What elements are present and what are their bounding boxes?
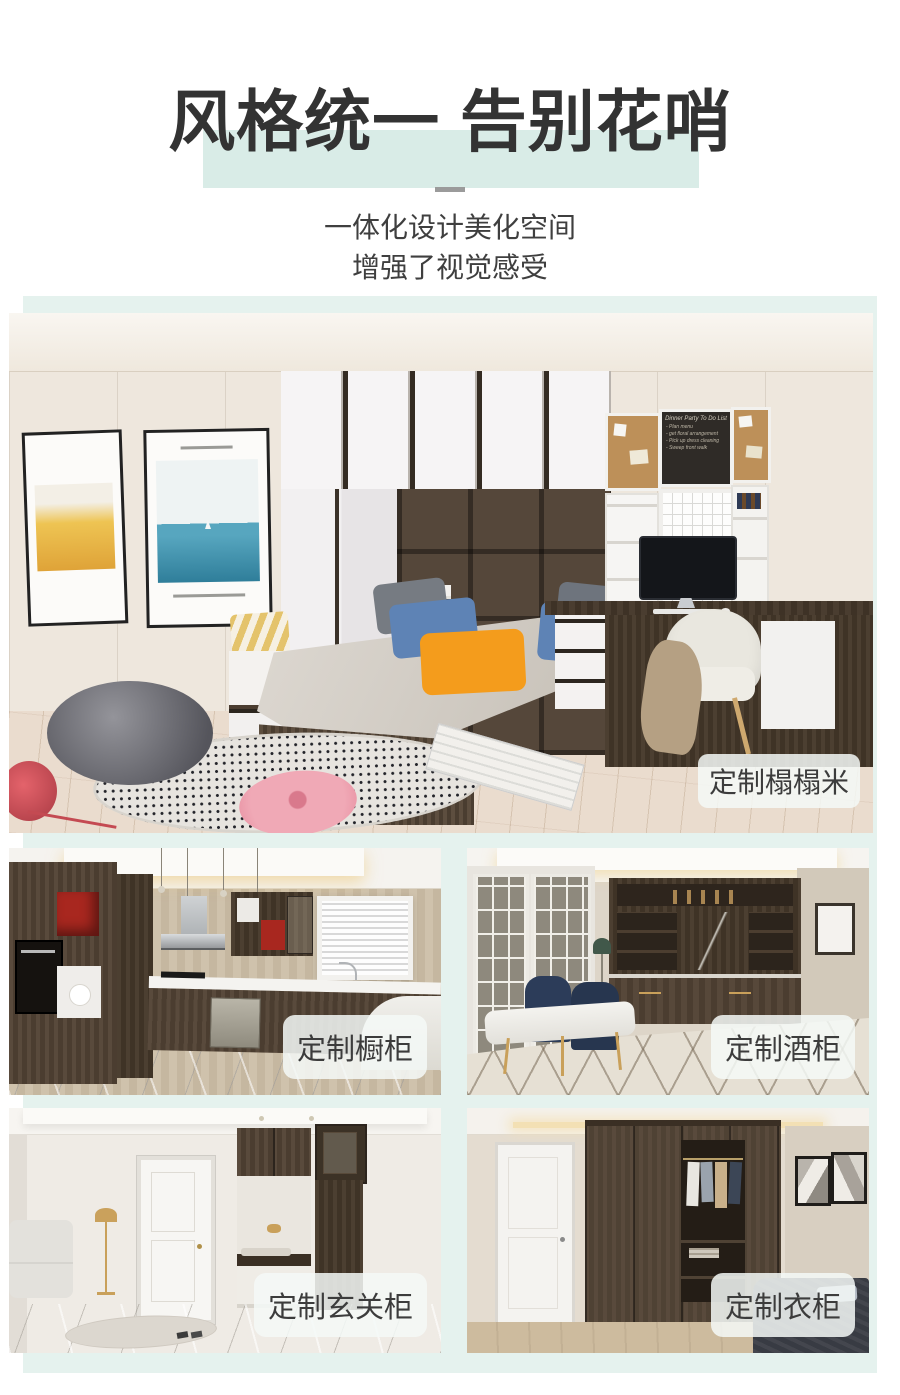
- display-plate: [69, 984, 91, 1006]
- cabinet-gap: [273, 1128, 275, 1176]
- built-in-oven: [15, 940, 63, 1014]
- dishwasher: [210, 997, 261, 1048]
- upper-cabinets: [231, 892, 313, 956]
- range-hood: [161, 934, 225, 950]
- pillow-orange: [419, 628, 526, 695]
- upper-red-niche: [261, 920, 285, 950]
- tall-cabinet-left: [9, 862, 117, 1084]
- pinned-note: [746, 445, 763, 458]
- wine-shelves-left: [617, 912, 677, 970]
- memo-corkboard-left: [605, 413, 661, 491]
- door-knob: [560, 1237, 565, 1242]
- subtitle-line-2: 增强了视觉感受: [0, 250, 900, 286]
- chalkboard-item: - Plan menu: [666, 424, 730, 430]
- door-panel: [508, 1237, 558, 1309]
- cabinet-handle: [639, 992, 661, 994]
- photo-entryway: 定制玄关柜: [9, 1108, 441, 1353]
- glass-cabinet-doors: [287, 896, 313, 954]
- chalkboard-item: - get floral arrangement: [666, 431, 730, 437]
- knit-pouf: [47, 681, 213, 785]
- desk-cabinet-white-door: [761, 621, 835, 729]
- photo-label-wardrobe: 定制衣柜: [711, 1273, 855, 1337]
- spotlight: [259, 1116, 264, 1121]
- hanging-clothes: [686, 1162, 700, 1206]
- entry-open-niche: [237, 1176, 311, 1254]
- photo-kitchen: 定制橱柜: [9, 848, 441, 1095]
- ocean-caption-bottom: [173, 593, 245, 597]
- closet-shelf: [681, 1240, 745, 1243]
- closet-rod: [683, 1158, 743, 1160]
- hanging-clothes: [700, 1162, 713, 1202]
- shelf-divider: [733, 517, 767, 520]
- door-panel: [508, 1157, 558, 1229]
- bench-cushion: [241, 1248, 291, 1256]
- shelf-divider: [733, 557, 767, 560]
- ceiling-cove: [23, 1108, 427, 1124]
- wall-frame: [815, 903, 855, 955]
- subtitle-line-1: 一体化设计美化空间: [0, 210, 900, 246]
- wall-art-ocean: [143, 428, 272, 628]
- pendant-bulb: [220, 890, 227, 897]
- photo-wine-cabinet-room: 定制酒柜: [467, 848, 869, 1095]
- gold-floor-lamp-shade: [95, 1208, 117, 1222]
- entry-ceiling: [9, 1108, 441, 1135]
- page-root: 风格统一 告别花哨 一体化设计美化空间 增强了视觉感受: [0, 0, 900, 1395]
- sailboat: [205, 520, 211, 529]
- folded-clothes: [689, 1248, 719, 1258]
- bench-top: [237, 1254, 311, 1266]
- door-knob: [197, 1244, 202, 1249]
- entry-upper-cabinets: [237, 1128, 311, 1176]
- photo-tatami-room: Dinner Party To Do List - Plan menu - ge…: [9, 313, 873, 833]
- title-divider: [435, 187, 465, 192]
- door-panel: [151, 1172, 195, 1232]
- pendant-light: [187, 848, 188, 900]
- pinned-note: [629, 449, 648, 465]
- photo-label-kitchen: 定制橱柜: [283, 1015, 427, 1079]
- hanging-clothes: [728, 1162, 742, 1205]
- computer-monitor: [639, 536, 737, 600]
- entry-door: [137, 1156, 215, 1324]
- wall-art-dune: [22, 429, 129, 626]
- overhead-cabinets: [281, 371, 611, 494]
- range-hood-chimney: [181, 896, 207, 936]
- sofa: [9, 1220, 73, 1298]
- spotlight: [309, 1116, 314, 1121]
- desk-side-drawers: [555, 615, 605, 709]
- upper-white-niche: [237, 898, 259, 922]
- oven-handle: [21, 950, 55, 953]
- photo-label-entryway: 定制玄关柜: [254, 1273, 427, 1337]
- bedroom-door: [495, 1142, 575, 1326]
- niche-decor: [267, 1224, 281, 1233]
- pendant-bulb: [158, 886, 165, 893]
- photo-wardrobe-room: 定制衣柜: [467, 1108, 869, 1353]
- kitchen-window-blinds: [317, 896, 413, 980]
- gold-floor-lamp-stem: [105, 1220, 107, 1292]
- entry-glass-cabinet: [315, 1124, 367, 1184]
- wine-bottles: [673, 890, 737, 904]
- pinned-note: [613, 423, 626, 436]
- pendant-light: [161, 848, 162, 888]
- chalkboard-item: - Pick up dress cleaning: [666, 438, 730, 444]
- red-display-niche: [57, 892, 99, 936]
- chalkboard-title: Dinner Party To Do List: [665, 416, 727, 422]
- wine-shelves-right: [749, 912, 793, 970]
- gold-floor-lamp-base: [97, 1292, 115, 1295]
- photo-label-wine: 定制酒柜: [711, 1015, 855, 1079]
- memo-chalkboard: Dinner Party To Do List - Plan menu - ge…: [659, 409, 733, 487]
- pendant-light: [223, 848, 224, 892]
- ocean-caption-top: [181, 446, 233, 450]
- photo-label-tatami: 定制榻榻米: [698, 754, 860, 808]
- wall-art-abstract: [831, 1152, 867, 1204]
- floor-lamp-shade: [593, 938, 611, 954]
- wine-cabinet: [609, 878, 801, 1020]
- chalkboard-item: - Sweep front walk: [666, 445, 730, 451]
- shelf-book-spines: [737, 493, 761, 509]
- white-display-niche: [57, 966, 101, 1018]
- cooktop: [161, 972, 205, 979]
- glass-pane: [323, 1132, 357, 1174]
- pinned-note: [738, 415, 752, 427]
- dune-art: [34, 483, 115, 572]
- bedroom-ceiling: [9, 313, 873, 372]
- memo-corkboard-right: [731, 407, 771, 483]
- cabinet-handle: [729, 992, 751, 994]
- wall-art-abstract: [795, 1156, 831, 1206]
- marble-niche: [685, 912, 741, 970]
- hanging-clothes: [715, 1162, 727, 1208]
- door-panel: [151, 1240, 195, 1302]
- wine-top-shelf: [617, 884, 793, 906]
- page-title: 风格统一 告别花哨: [0, 84, 900, 161]
- table-leg-gold: [561, 1036, 564, 1076]
